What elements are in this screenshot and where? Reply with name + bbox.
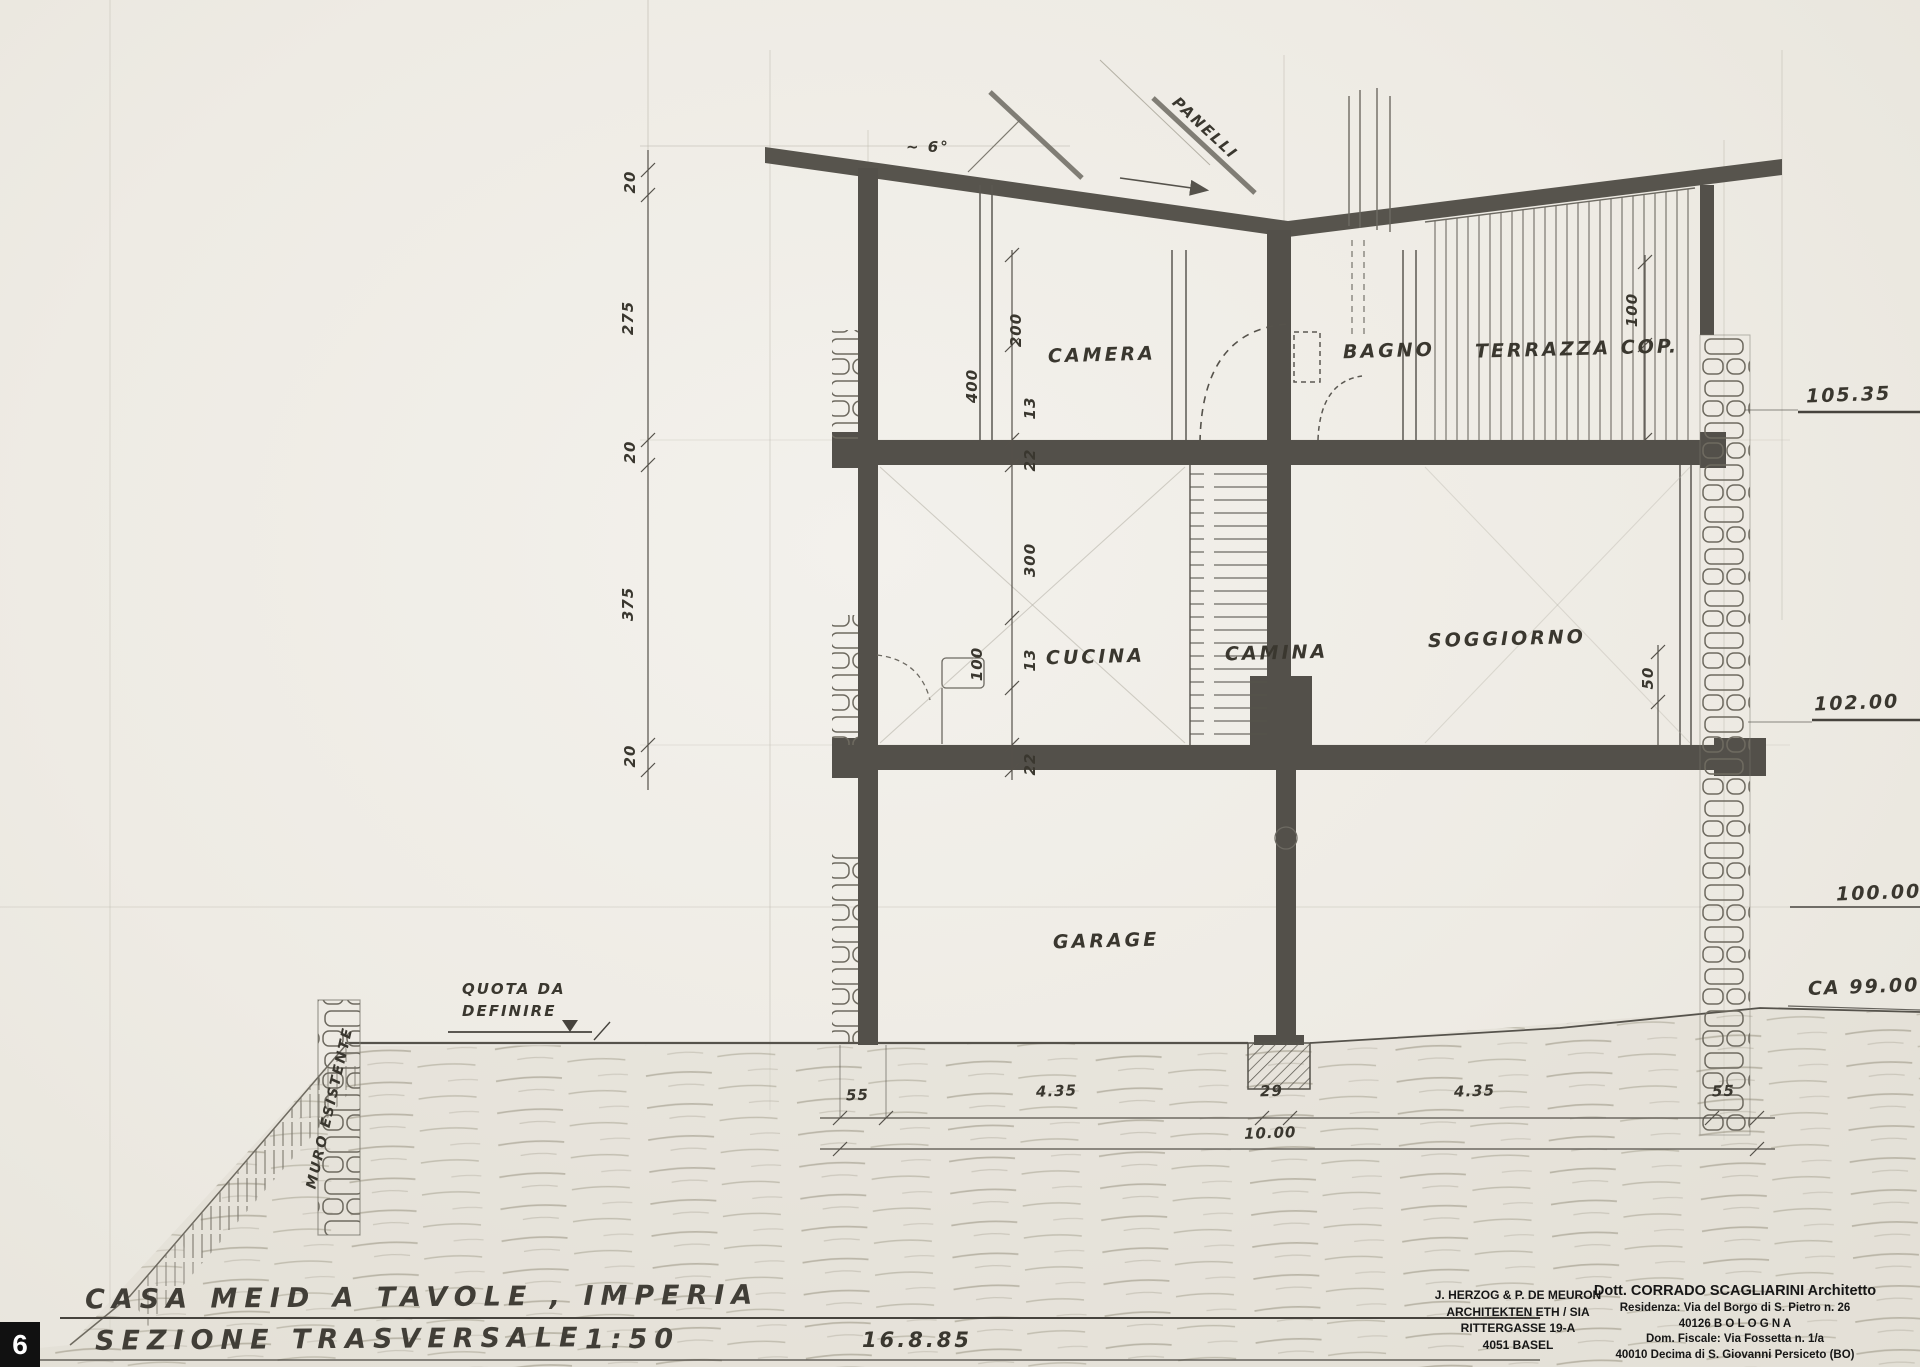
room-label-garage: GARAGE bbox=[1053, 929, 1160, 954]
terrace-slats bbox=[1425, 188, 1695, 440]
note-quota-line1: QUOTA DA bbox=[462, 980, 566, 998]
room-label-soggiorno: SOGGIORNO bbox=[1428, 626, 1586, 652]
dim-bottom-bay-left: 4.35 bbox=[1036, 1081, 1078, 1100]
stamp-scagliarini-line4: Dom. Fiscale: Via Fossetta n. 1/a bbox=[1575, 1332, 1895, 1348]
dim-left-roof: 20 bbox=[621, 171, 639, 194]
stamp-scagliarini-name: Dott. CORRADO SCAGLIARINI Architetto bbox=[1575, 1282, 1895, 1301]
drawing-sheet: CAMERA BAGNO TERRAZZA COP. CUCINA CAMINA… bbox=[0, 0, 1920, 1367]
dim-upper-t1: 13 bbox=[1021, 397, 1039, 420]
elevation-ground: CA 99.00 bbox=[1808, 974, 1920, 1000]
dim-left-slab1: 20 bbox=[621, 441, 639, 464]
dim-upper-room: 200 bbox=[1007, 313, 1025, 347]
dim-bottom-column: 29 bbox=[1260, 1082, 1283, 1101]
sheet-title: CASA MEID A TAVOLE , IMPERIA bbox=[85, 1280, 759, 1316]
elevation-roof: 105.35 bbox=[1806, 383, 1892, 408]
room-label-camera: CAMERA bbox=[1048, 343, 1156, 368]
note-roof-angle: ~ 6° bbox=[906, 138, 950, 156]
dim-lower-right: 50 bbox=[1639, 667, 1657, 690]
dim-lower-t2: 22 bbox=[1021, 753, 1039, 776]
stamp-scagliarini-line5: 40010 Decima di S. Giovanni Persiceto (B… bbox=[1575, 1348, 1895, 1364]
elevation-datum: 100.00 bbox=[1836, 881, 1920, 906]
dim-upper-total: 400 bbox=[963, 369, 981, 403]
sheet-number: 6 bbox=[0, 1322, 40, 1367]
note-quota-line2: DEFINIRE bbox=[462, 1002, 556, 1020]
dim-upper-t2: 22 bbox=[1021, 449, 1039, 472]
dim-left-upper-floor: 275 bbox=[619, 301, 637, 335]
sheet-subtitle: SEZIONE TRASVERSALE bbox=[95, 1322, 585, 1356]
dim-bottom-wall-right: 55 bbox=[1712, 1082, 1735, 1101]
elevation-main-floor: 102.00 bbox=[1814, 691, 1900, 716]
sheet-scale: 1:50 bbox=[585, 1324, 680, 1356]
section-drawing bbox=[0, 0, 1920, 1367]
dim-left-slab2: 20 bbox=[621, 745, 639, 768]
sheet-date: 16.8.85 bbox=[862, 1328, 972, 1352]
level-marker-icon bbox=[448, 1020, 610, 1040]
dim-bottom-bay-right: 4.35 bbox=[1454, 1081, 1496, 1100]
room-label-bagno: BAGNO bbox=[1343, 339, 1435, 363]
room-label-cucina: CUCINA bbox=[1046, 645, 1146, 670]
dim-lower-part: 100 bbox=[968, 647, 986, 681]
dim-bottom-total: 10.00 bbox=[1244, 1123, 1297, 1143]
dim-lower-total: 300 bbox=[1021, 543, 1039, 577]
room-label-camina: CAMINA bbox=[1225, 641, 1329, 666]
dim-bottom-wall-left: 55 bbox=[846, 1086, 869, 1105]
dim-upper-right: 100 bbox=[1623, 293, 1641, 327]
dim-left-main-floor: 375 bbox=[619, 587, 637, 621]
stamp-scagliarini-line3: 40126 B O L O G N A bbox=[1575, 1317, 1895, 1333]
dim-lower-t1: 13 bbox=[1021, 649, 1039, 672]
stamp-scagliarini-line2: Residenza: Via del Borgo di S. Pietro n.… bbox=[1575, 1301, 1895, 1317]
stamp-scagliarini: Dott. CORRADO SCAGLIARINI Architetto Res… bbox=[1575, 1282, 1895, 1363]
